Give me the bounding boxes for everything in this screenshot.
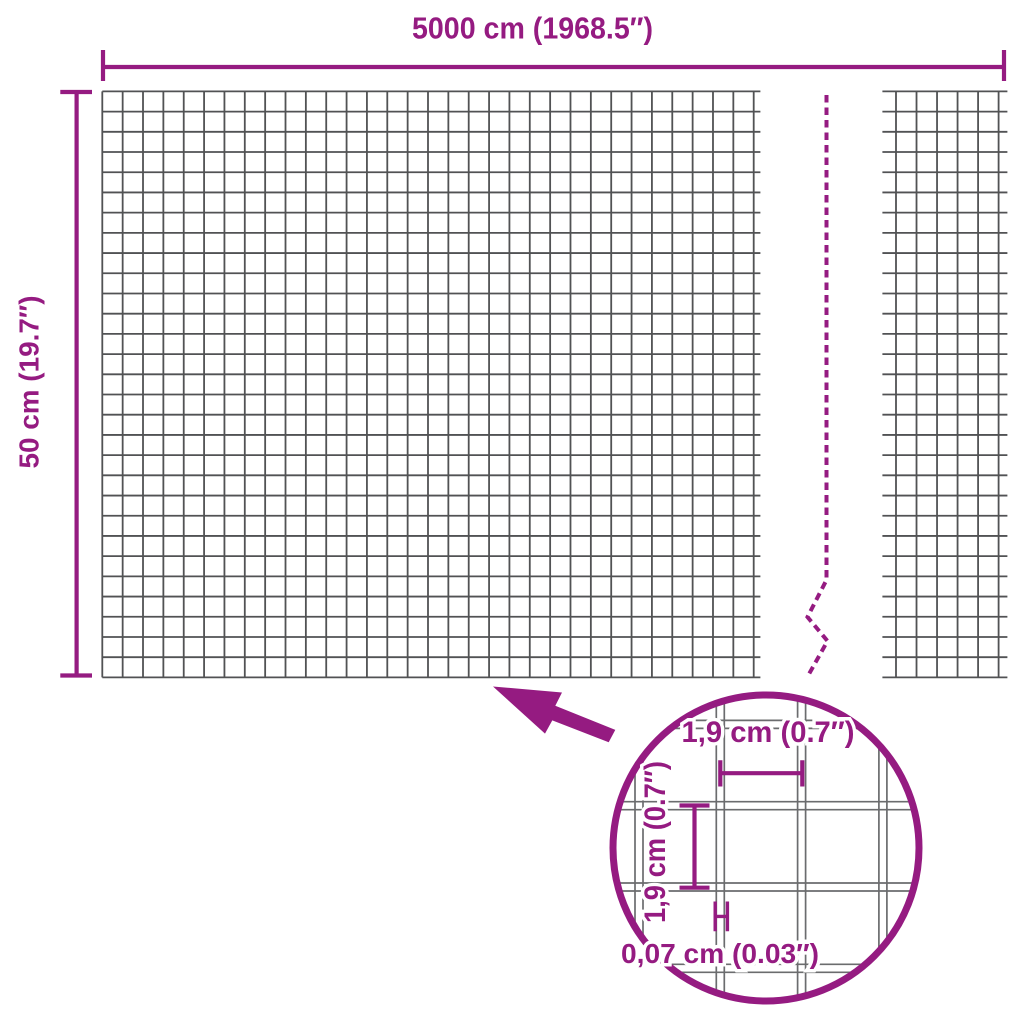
svg-text:5000 cm (1968.5″): 5000 cm (1968.5″) bbox=[412, 11, 653, 46]
svg-text:1,9 cm (0.7″): 1,9 cm (0.7″) bbox=[682, 716, 855, 749]
svg-text:0,07 cm (0.03″): 0,07 cm (0.03″) bbox=[621, 938, 819, 969]
svg-text:50 cm (19.7″): 50 cm (19.7″) bbox=[14, 296, 45, 469]
svg-text:1,9 cm (0.7″): 1,9 cm (0.7″) bbox=[639, 761, 672, 923]
